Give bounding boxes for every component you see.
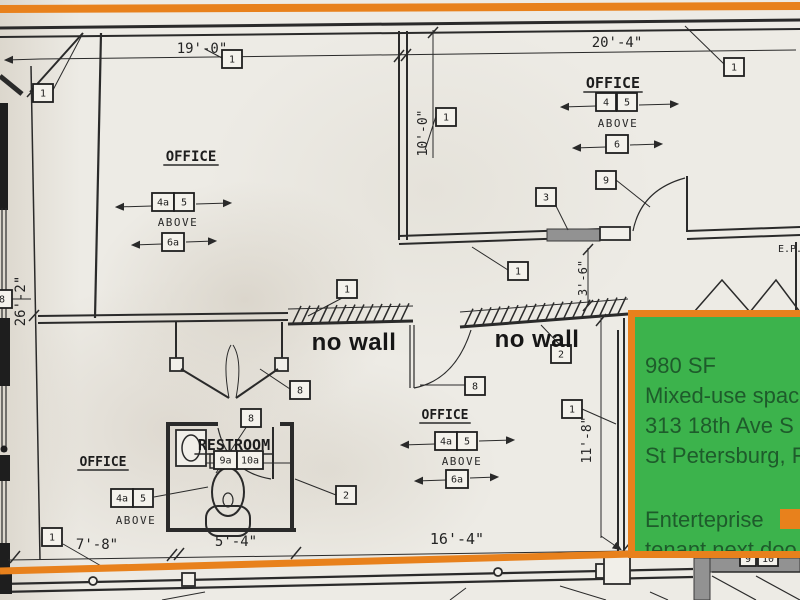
tenant-name: Enterteprise [645, 507, 764, 532]
dimension-label: 5'-4" [215, 534, 257, 550]
dimension-label: 11'-8" [580, 417, 595, 464]
listing-sqft: 980 SF [645, 351, 800, 381]
keynote-tag-label: 2 [343, 491, 349, 502]
above-label: ABOVE [116, 514, 157, 527]
above-label: ABOVE [442, 455, 483, 468]
hatch-topline [288, 306, 413, 309]
room-label: OFFICE [166, 149, 217, 165]
keynote-tag-label: 10a [241, 456, 259, 467]
keynote-tag-label: 5 [464, 437, 470, 448]
highlight-swatch [780, 509, 800, 529]
floor-plan-screenshot: 111112139188889a10a4564a56a4a54a56a21910… [0, 0, 800, 600]
keynote-tag-label: 5 [181, 198, 187, 209]
dimension-label: 26'-2" [13, 276, 29, 327]
no-wall-hatch [288, 297, 628, 328]
dimension-label: 10'-0" [416, 110, 431, 157]
keynote-tag-label: 3 [543, 193, 549, 204]
keynote-tag-label: 8 [248, 414, 254, 425]
listing-type: Mixed-use spac [645, 381, 800, 411]
room-label: OFFICE [422, 408, 469, 423]
keynote-tag-label: 1 [229, 55, 235, 66]
keynote-tag-label: 6a [167, 238, 179, 249]
above-label: ABOVE [598, 117, 639, 130]
shaded-wall-segment [547, 229, 600, 241]
listing-tenant-row: Enterteprise [645, 505, 800, 535]
keynote-tag-label: 1 [40, 89, 46, 100]
keynote-tag-label: 1 [731, 63, 737, 74]
keynote-tag-label: 4a [440, 437, 452, 448]
room-label-underlines [77, 92, 642, 470]
bifold-doors [694, 280, 800, 312]
above-label: ABOVE [158, 216, 199, 229]
toilet-fixture [212, 468, 244, 516]
keynote-tag-label: 1 [344, 285, 350, 296]
keynote-tag-label: 4a [157, 198, 169, 209]
keynote-tag-label: 1 [443, 113, 449, 124]
keynote-tag-label: 4a [116, 494, 128, 505]
listing-city: St Petersburg, F [645, 441, 800, 471]
keynote-tag-label: 1 [569, 405, 575, 416]
dimension-label: 20'-4" [592, 35, 643, 51]
dimension-label: E.P. [778, 244, 800, 255]
keynote-tag-label: 5 [624, 98, 630, 109]
door-swing-arc [414, 330, 471, 388]
keynote-tag-label: 8 [297, 386, 303, 397]
door-swing-arc [633, 178, 685, 231]
keynote-tag-label: 9a [219, 456, 231, 467]
keynote-tag-label: 8 [0, 295, 5, 306]
keynote-tag-label: 8 [472, 382, 478, 393]
room-label: OFFICE [586, 74, 640, 92]
hatch-baseline [288, 321, 413, 324]
keynote-tag-label: 6a [451, 475, 463, 486]
keynote-tag-label: 5 [140, 494, 146, 505]
door-swing-arc [226, 345, 231, 398]
keynote-tag-label: 1 [49, 533, 55, 544]
no-wall-annotation: no wall [495, 326, 580, 353]
keynote-tag-label: 4 [603, 98, 609, 109]
keynote-tag-label: 6 [614, 140, 620, 151]
no-wall-annotation: no wall [312, 329, 397, 356]
listing-tenant-line2: tenant next doo [645, 535, 800, 558]
keynote-tag-label: 9 [603, 176, 609, 187]
listing-address: 313 18th Ave S [645, 411, 800, 441]
dimension-label: 7'-8" [76, 537, 118, 553]
listing-overlay: 980 SF Mixed-use spac 313 18th Ave S St … [628, 310, 800, 558]
dimension-label: 19'-0" [177, 41, 228, 57]
keynote-tag-label: 1 [515, 267, 521, 278]
dimension-label: 3'-6" [576, 260, 590, 296]
door-swing-arc [233, 345, 239, 398]
dimension-label: 16'-4" [430, 530, 484, 548]
dimension-ticks [10, 27, 629, 563]
room-label: OFFICE [80, 455, 127, 470]
room-label: RESTROOM [198, 436, 270, 454]
